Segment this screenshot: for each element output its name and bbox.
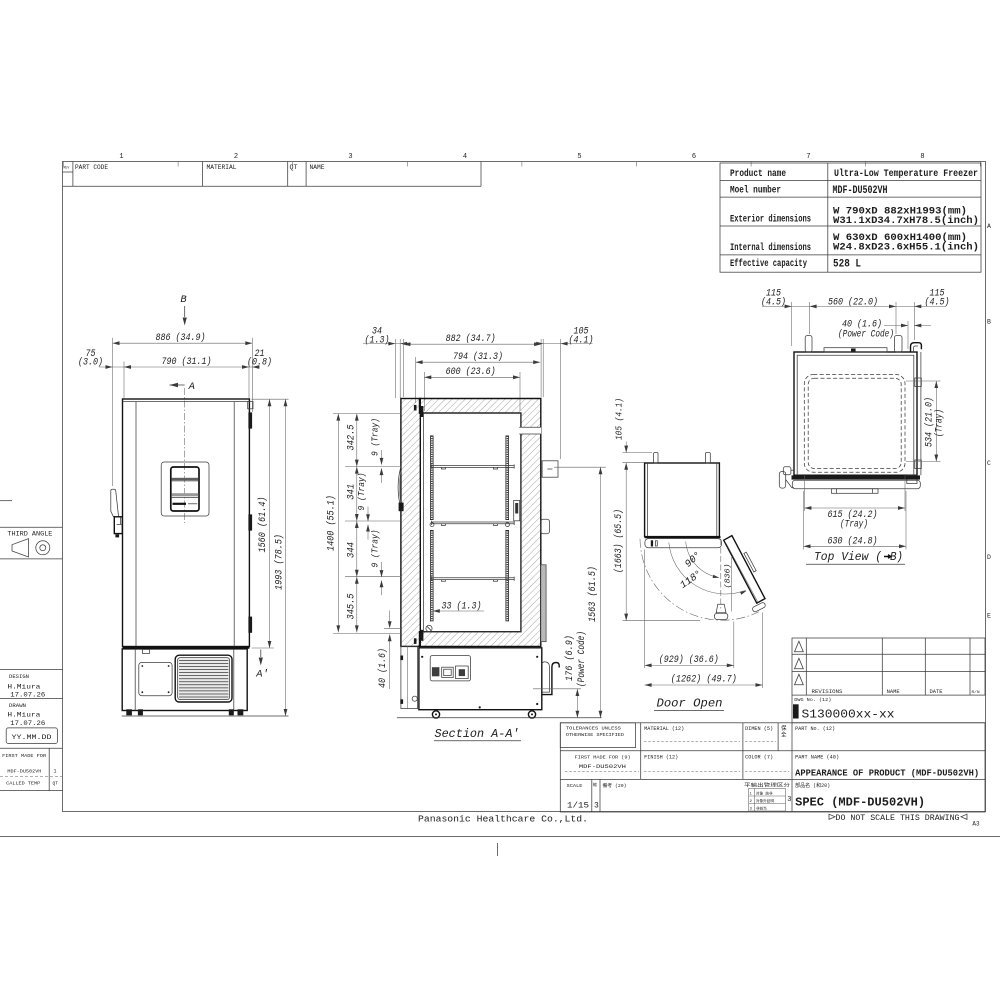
svg-text:平輸出管理区分: 平輸出管理区分 (744, 781, 791, 788)
svg-text:COLOR (7): COLOR (7) (745, 755, 773, 761)
svg-text:TOLERANCES UNLESS: TOLERANCES UNLESS (566, 725, 621, 731)
svg-text:17.07.26: 17.07.26 (10, 692, 45, 699)
svg-text:MATERIAL: MATERIAL (207, 164, 237, 171)
svg-text:9 (Tray): 9 (Tray) (369, 530, 380, 568)
svg-text:DATE: DATE (930, 689, 943, 695)
svg-text:MDF-DU502VH: MDF-DU502VH (579, 763, 626, 770)
svg-text:3: 3 (787, 796, 791, 804)
svg-text:(1663) (65.5): (1663) (65.5) (613, 509, 625, 573)
svg-text:(Power Code): (Power Code) (576, 631, 588, 687)
svg-text:DRAWN: DRAWN (9, 703, 26, 709)
svg-text:DWG No. (12): DWG No. (12) (794, 697, 831, 703)
svg-text:NAME: NAME (310, 164, 325, 171)
svg-text:Moel number: Moel number (730, 185, 781, 197)
svg-text:Door Open: Door Open (657, 697, 723, 711)
svg-text:DIMEN (5): DIMEN (5) (745, 726, 773, 732)
svg-text:B): B) (890, 550, 903, 564)
svg-text:FIRST MADE FOR: FIRST MADE FOR (2, 753, 46, 759)
svg-text:40 (1.6): 40 (1.6) (842, 318, 882, 330)
svg-text:Panasonic Healthcare Co.,Ltd.: Panasonic Healthcare Co.,Ltd. (418, 815, 588, 825)
svg-text:E: E (987, 613, 991, 620)
svg-text:8: 8 (920, 153, 924, 161)
svg-text:9 (Tray): 9 (Tray) (356, 473, 367, 511)
svg-text:MATERIAL (12): MATERIAL (12) (644, 726, 684, 732)
svg-text:342.5: 342.5 (346, 425, 357, 451)
svg-text:345.5: 345.5 (346, 594, 357, 620)
svg-text:(Tray): (Tray) (934, 409, 946, 437)
svg-text:(3.0): (3.0) (78, 357, 103, 369)
svg-text:SPEC (MDF-DU502VH): SPEC (MDF-DU502VH) (795, 796, 925, 809)
svg-text:YY.MM.DD: YY.MM.DD (12, 734, 53, 741)
svg-text:534 (21.0): 534 (21.0) (923, 397, 935, 447)
svg-text:Internal dimensions: Internal dimensions (730, 242, 811, 254)
svg-text:C: C (987, 460, 991, 467)
svg-text:6: 6 (692, 153, 696, 161)
svg-text:W31.1xD34.7xH78.5(inch): W31.1xD34.7xH78.5(inch) (833, 215, 979, 227)
svg-text:MDF-DU502VH: MDF-DU502VH (7, 769, 41, 775)
svg-text:全: 全 (781, 731, 787, 739)
svg-text:17.07.26: 17.07.26 (10, 720, 45, 727)
svg-text:A: A (987, 223, 991, 230)
svg-text:B: B (987, 319, 991, 326)
svg-text:OTHERWISE SPECIFIED: OTHERWISE SPECIFIED (566, 732, 624, 738)
svg-text:R/N: R/N (972, 690, 981, 695)
svg-text:SCALE: SCALE (567, 783, 583, 789)
svg-text:DESIGN: DESIGN (9, 674, 29, 680)
svg-text:(929) (36.6): (929) (36.6) (659, 654, 719, 666)
svg-text:1/15: 1/15 (567, 802, 589, 811)
svg-text:(Tray): (Tray) (840, 519, 868, 531)
svg-text:7: 7 (806, 153, 810, 161)
svg-text:DO NOT SCALE THIS DRAWING: DO NOT SCALE THIS DRAWING (836, 814, 960, 823)
svg-text:1: 1 (54, 769, 57, 775)
svg-text:(836): (836) (724, 564, 732, 589)
svg-text:(4.1): (4.1) (569, 334, 594, 346)
svg-text:176 (6.9): 176 (6.9) (564, 635, 576, 681)
svg-text:Product name: Product name (730, 168, 786, 180)
svg-text:Ultra-Low Temperature Freezer: Ultra-Low Temperature Freezer (834, 168, 978, 180)
svg-text:3: 3 (348, 153, 352, 161)
svg-text:Effective capacity: Effective capacity (730, 258, 807, 270)
svg-text:A3: A3 (972, 821, 980, 828)
svg-text:REVISIONS: REVISIONS (812, 689, 843, 695)
svg-text:MDF-DU502VH: MDF-DU502VH (833, 185, 888, 197)
svg-text:3: 3 (594, 802, 599, 811)
svg-text:PART No. (12): PART No. (12) (795, 726, 835, 732)
svg-text:344: 344 (346, 542, 357, 558)
svg-text:1563 (61.5): 1563 (61.5) (587, 566, 599, 622)
svg-text:PART CODE: PART CODE (75, 164, 108, 171)
svg-text:S130000xx-xx: S130000xx-xx (802, 707, 895, 721)
svg-text:Exterior dimensions: Exterior dimensions (730, 214, 811, 226)
svg-text:794 (31.3): 794 (31.3) (453, 351, 503, 363)
svg-text:THIRD ANGLE: THIRD ANGLE (7, 530, 52, 537)
svg-text:33 (1.3): 33 (1.3) (442, 600, 482, 612)
svg-text:W24.8xD23.6xH55.1(inch): W24.8xD23.6xH55.1(inch) (833, 242, 979, 254)
svg-text:備考 (20): 備考 (20) (603, 782, 627, 789)
svg-text:QT: QT (290, 164, 298, 171)
svg-text:886 (34.9): 886 (34.9) (156, 332, 206, 344)
svg-text:4: 4 (463, 153, 467, 161)
svg-text:A: A (188, 381, 195, 393)
svg-text:QT: QT (53, 780, 59, 786)
svg-text:REV: REV (64, 166, 70, 170)
svg-text:(0.8): (0.8) (247, 357, 272, 369)
svg-text:105 (4.1): 105 (4.1) (614, 398, 625, 440)
svg-text:(1262) (49.7): (1262) (49.7) (671, 674, 737, 686)
svg-text:882 (34.7): 882 (34.7) (446, 333, 496, 345)
svg-text:FIRST MADE FOR (9): FIRST MADE FOR (9) (575, 755, 631, 761)
svg-text:D: D (987, 554, 991, 561)
svg-text:CALLED TEMP: CALLED TEMP (6, 780, 40, 786)
svg-text:528 L: 528 L (833, 259, 861, 271)
svg-text:600 (23.6): 600 (23.6) (446, 366, 496, 378)
svg-text:1560 (61.4): 1560 (61.4) (257, 497, 269, 553)
svg-text:630 (24.8): 630 (24.8) (828, 535, 878, 547)
svg-text:Top View (: Top View ( (814, 550, 882, 564)
svg-text:H.Miura: H.Miura (7, 683, 41, 690)
svg-text:790 (31.1): 790 (31.1) (162, 356, 212, 368)
svg-text:1993 (78.5): 1993 (78.5) (274, 534, 286, 590)
svg-text:B: B (180, 294, 186, 306)
svg-text:9 (Tray): 9 (Tray) (369, 418, 380, 456)
svg-text:PART NAME (40): PART NAME (40) (795, 755, 839, 761)
svg-text:NAME: NAME (887, 689, 900, 695)
svg-text:5: 5 (577, 153, 581, 161)
svg-text:APPEARANCE OF PRODUCT (MDF-DU5: APPEARANCE OF PRODUCT (MDF-DU502VH) (795, 768, 979, 778)
svg-text:(Power Code): (Power Code) (838, 329, 894, 341)
svg-text:2: 2 (234, 153, 238, 161)
svg-text:1400 (55.1): 1400 (55.1) (326, 495, 338, 551)
svg-text:(1.3): (1.3) (365, 334, 390, 346)
svg-text:FINISH (12): FINISH (12) (644, 755, 678, 761)
svg-text:Section A-A': Section A-A' (435, 727, 520, 741)
svg-text:A': A' (255, 669, 269, 681)
svg-text:部品名 (和20): 部品名 (和20) (795, 782, 830, 789)
svg-text:40 (1.6): 40 (1.6) (377, 648, 389, 688)
svg-text:1: 1 (119, 153, 123, 161)
svg-text:H.Miura: H.Miura (7, 711, 41, 718)
